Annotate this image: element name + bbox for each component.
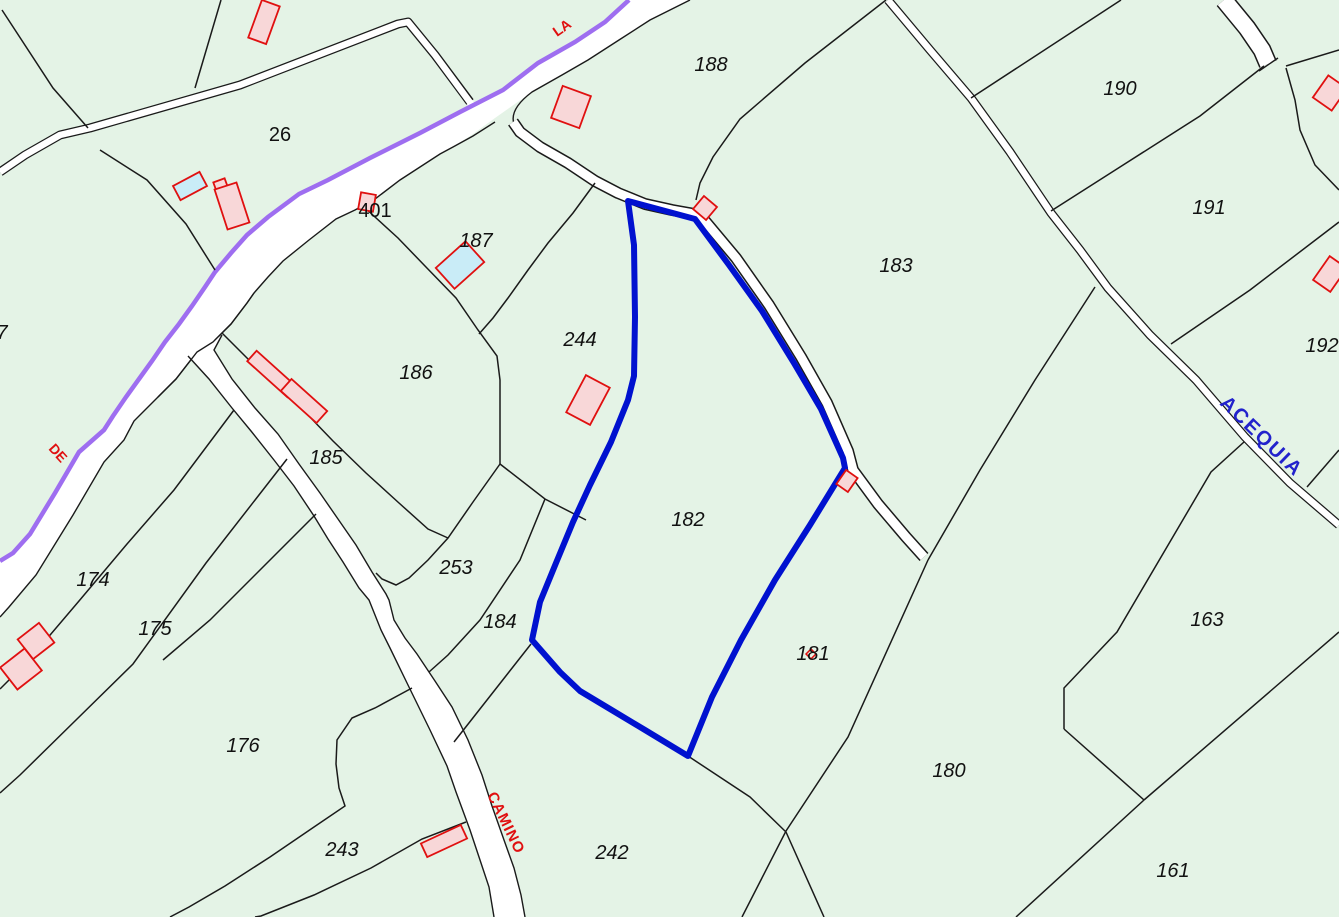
svg-text:180: 180 <box>932 760 965 782</box>
svg-text:187: 187 <box>459 230 493 252</box>
svg-text:192: 192 <box>1305 335 1338 357</box>
svg-text:243: 243 <box>324 839 358 861</box>
svg-text:26: 26 <box>269 124 291 146</box>
svg-text:182: 182 <box>671 509 704 531</box>
svg-text:184: 184 <box>483 611 516 633</box>
svg-text:174: 174 <box>76 569 109 591</box>
svg-text:186: 186 <box>399 362 433 384</box>
svg-text:191: 191 <box>1192 197 1225 219</box>
svg-text:181: 181 <box>796 643 829 665</box>
svg-text:185: 185 <box>309 447 343 469</box>
svg-text:244: 244 <box>562 329 596 351</box>
svg-text:190: 190 <box>1103 78 1136 100</box>
svg-text:188: 188 <box>694 54 727 76</box>
svg-text:253: 253 <box>438 557 472 579</box>
svg-text:176: 176 <box>226 735 260 757</box>
svg-text:163: 163 <box>1190 609 1223 631</box>
svg-text:161: 161 <box>1156 860 1189 882</box>
svg-text:7: 7 <box>0 322 8 344</box>
svg-text:401: 401 <box>358 200 391 222</box>
svg-text:175: 175 <box>138 618 172 640</box>
svg-text:242: 242 <box>594 842 628 864</box>
svg-text:183: 183 <box>879 255 912 277</box>
